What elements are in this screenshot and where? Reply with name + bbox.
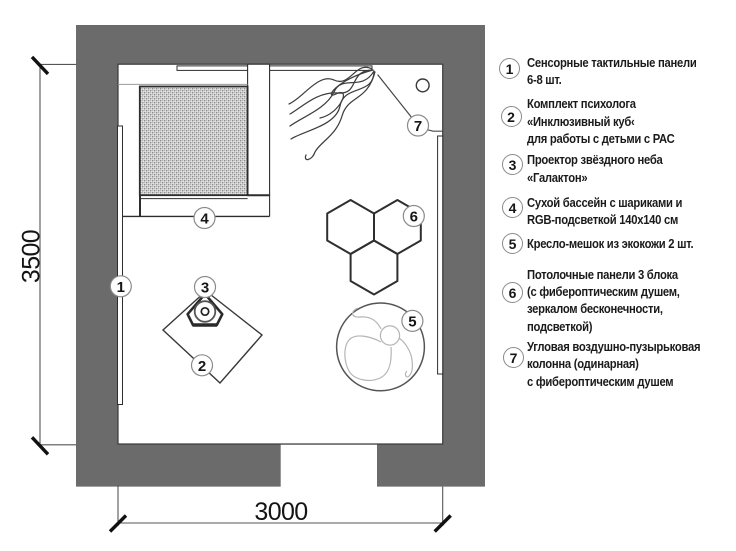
svg-text:7: 7 (414, 118, 422, 135)
svg-text:6: 6 (410, 209, 418, 226)
svg-text:5: 5 (408, 313, 416, 330)
svg-text:2: 2 (198, 358, 206, 375)
svg-text:1: 1 (117, 279, 125, 296)
svg-text:4: 4 (200, 211, 209, 228)
svg-text:3: 3 (201, 280, 209, 297)
